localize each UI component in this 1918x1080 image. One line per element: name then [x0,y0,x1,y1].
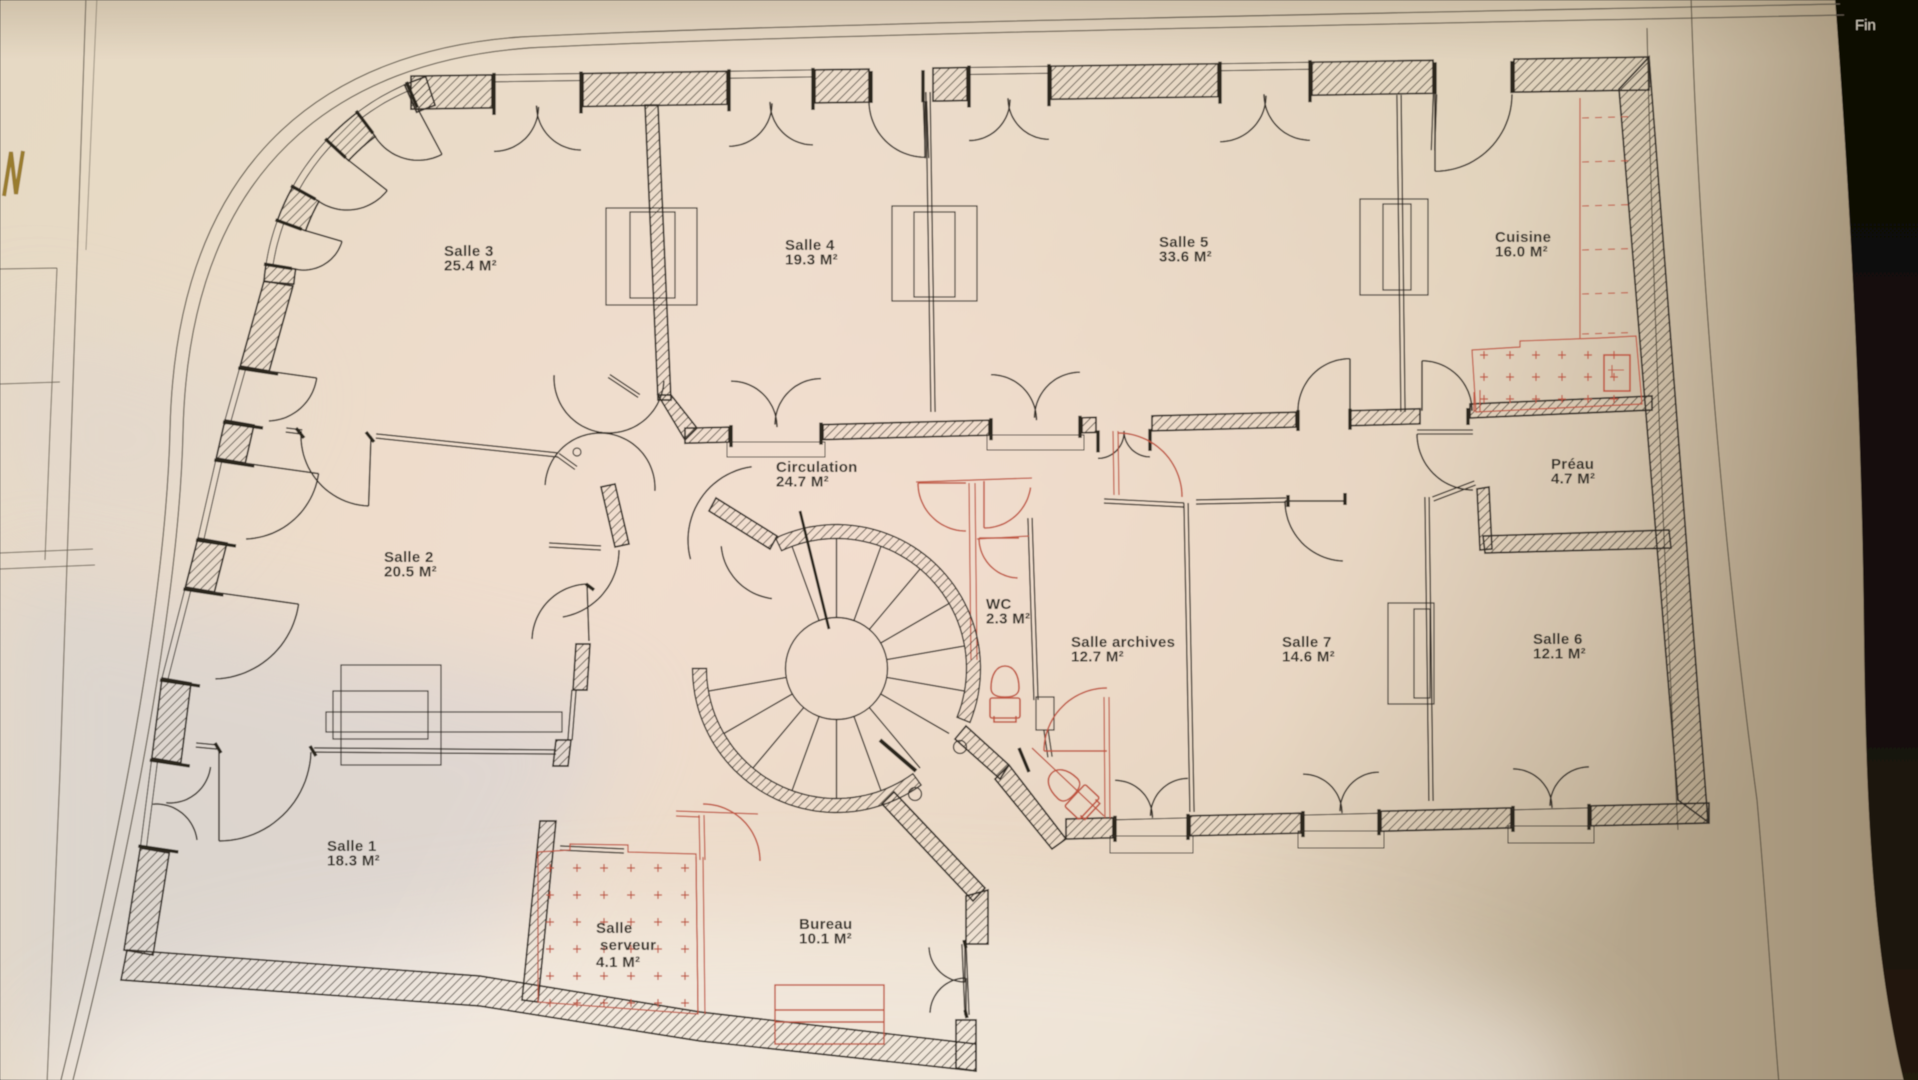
svg-text:18.3 M²: 18.3 M² [327,853,380,870]
svg-text:33.6 M²: 33.6 M² [1159,249,1212,266]
svg-text:12.7 M²: 12.7 M² [1071,649,1124,666]
svg-text:19.3 M²: 19.3 M² [785,252,838,269]
svg-text:24.7 M²: 24.7 M² [776,474,829,491]
svg-text:25.4 M²: 25.4 M² [444,258,497,275]
svg-text:16.0 M²: 16.0 M² [1495,244,1548,261]
svg-text:14.6 M²: 14.6 M² [1282,649,1335,666]
svg-text:4.7 M²: 4.7 M² [1551,471,1595,488]
svg-text:serveur: serveur [600,937,656,954]
svg-text:20.5 M²: 20.5 M² [384,564,437,581]
svg-text:10.1 M²: 10.1 M² [799,931,852,948]
svg-text:4.1 M²: 4.1 M² [596,954,640,971]
svg-text:2.3 M²: 2.3 M² [986,611,1030,628]
svg-text:12.1 M²: 12.1 M² [1533,646,1586,663]
svg-text:Fin: Fin [1855,17,1876,34]
svg-text:Salle: Salle [596,920,633,937]
